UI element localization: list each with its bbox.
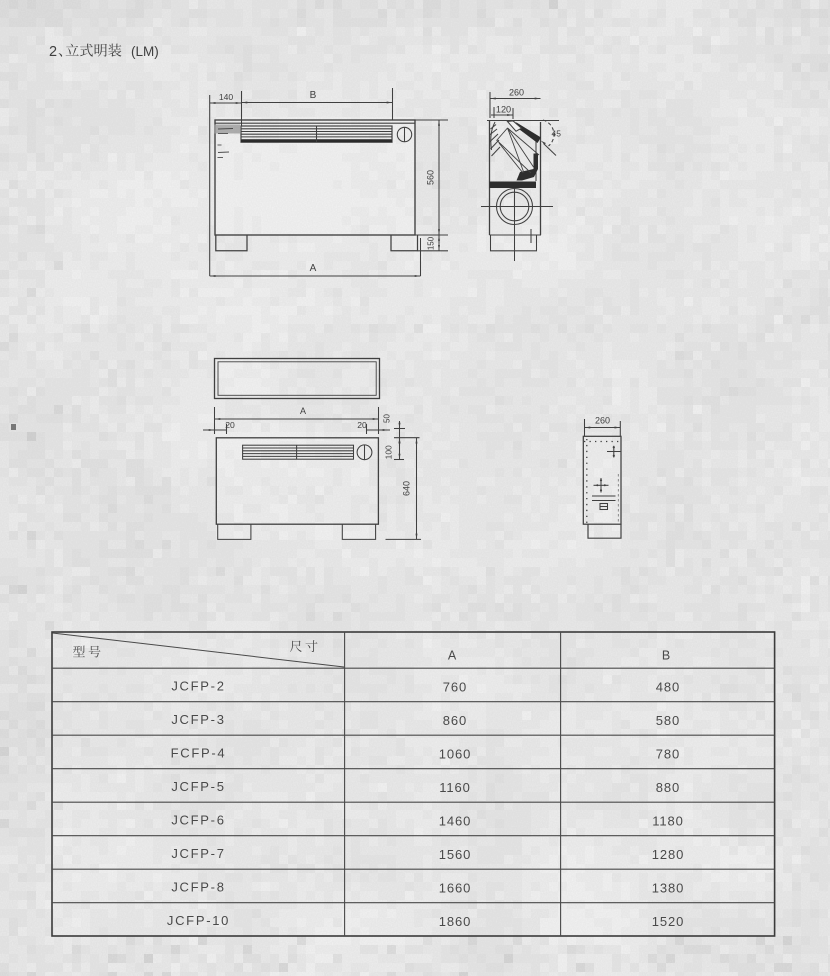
svg-text:45: 45 [552,129,562,139]
svg-text:100: 100 [384,445,394,459]
svg-text:880: 880 [656,780,680,795]
svg-text:50: 50 [383,414,392,423]
svg-text:JCFP-7: JCFP-7 [171,846,225,861]
svg-text:(LM): (LM) [131,44,159,59]
svg-text:B: B [662,649,670,663]
svg-text:JCFP-5: JCFP-5 [171,779,225,794]
svg-text:120: 120 [496,105,511,115]
svg-text:FCFP-4: FCFP-4 [171,746,227,761]
svg-text:JCFP-6: JCFP-6 [171,813,225,828]
svg-text:JCFP-3: JCFP-3 [171,712,225,727]
svg-text:JCFP-2: JCFP-2 [171,679,225,694]
svg-text:780: 780 [656,747,680,762]
svg-text:1560: 1560 [439,847,472,862]
svg-text:A: A [310,263,317,274]
svg-text:1060: 1060 [439,747,472,762]
svg-text:760: 760 [443,680,467,695]
svg-text:JCFP-8: JCFP-8 [171,880,225,895]
svg-text:260: 260 [595,416,610,426]
svg-text:JCFP-10: JCFP-10 [167,913,230,928]
svg-text:1180: 1180 [652,814,684,829]
svg-text:860: 860 [443,713,467,728]
svg-text:20: 20 [225,420,235,430]
svg-text:2: 2 [49,44,57,60]
svg-text:A: A [448,649,457,663]
svg-text:480: 480 [656,680,680,695]
svg-text:1460: 1460 [439,814,472,829]
svg-text:B: B [310,90,317,101]
svg-text:1160: 1160 [439,780,471,795]
svg-text:140: 140 [219,92,234,102]
svg-text:1380: 1380 [652,881,685,896]
svg-text:20: 20 [357,420,367,430]
svg-text:1520: 1520 [652,914,685,929]
svg-text:260: 260 [509,88,524,98]
svg-text:150: 150 [427,236,436,250]
svg-text:1660: 1660 [439,881,472,896]
svg-text:560: 560 [426,170,436,185]
svg-text:A: A [300,406,306,416]
svg-text:1280: 1280 [652,847,685,862]
svg-text:640: 640 [402,481,412,496]
svg-text:580: 580 [656,713,680,728]
svg-text:1860: 1860 [439,914,472,929]
